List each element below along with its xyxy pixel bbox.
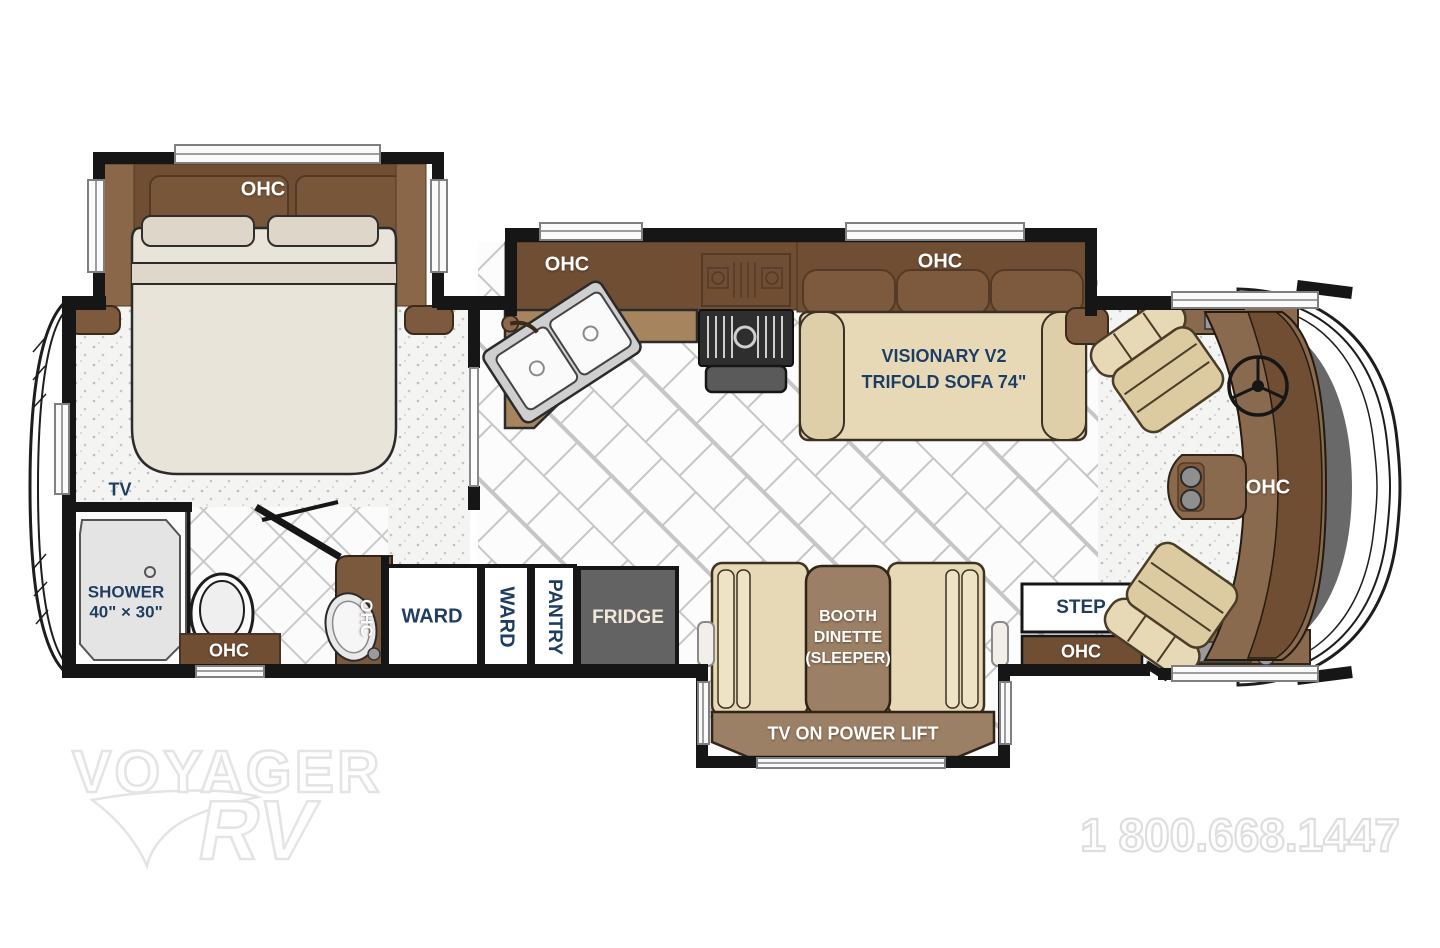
wardrobe-small-label: WARD: [495, 586, 518, 647]
sofa-label-line2: TRIFOLD SOFA 74": [862, 369, 1027, 395]
sofa-label-line1: VISIONARY V2: [862, 343, 1027, 369]
phone-watermark: 1 800.668.1447: [1010, 808, 1400, 862]
bedroom-ohc-label: OHC: [241, 179, 285, 202]
dinette-label: BOOTH DINETTE (SLEEPER): [805, 607, 890, 669]
rv-watermark: RV: [191, 782, 323, 879]
dinette-label-line3: (SLEEPER): [805, 648, 890, 669]
rv-floorplan-page: OHC TV SHOWER 40" × 30" OHC OHC WARD WAR…: [0, 0, 1440, 948]
sofa-ohc-label: OHC: [918, 251, 962, 274]
sofa-label: VISIONARY V2 TRIFOLD SOFA 74": [862, 343, 1027, 395]
wardrobe-large-label: WARD: [401, 606, 462, 629]
labels-layer: OHC TV SHOWER 40" × 30" OHC OHC WARD WAR…: [0, 0, 1440, 948]
dinette-label-line2: DINETTE: [805, 628, 890, 649]
tv-lift-label: TV ON POWER LIFT: [768, 724, 939, 745]
shower-label-line2: 40" × 30": [88, 602, 165, 622]
step-label: STEP: [1056, 597, 1106, 619]
fridge-label: FRIDGE: [592, 607, 664, 629]
entry-ohc-label: OHC: [1061, 642, 1101, 663]
vanity-ohc-label: OHC: [356, 599, 376, 637]
bedroom-tv-label: TV: [108, 480, 131, 501]
shower-label: SHOWER 40" × 30": [88, 582, 165, 621]
bathroom-ohc-label: OHC: [209, 641, 249, 662]
kitchen-ohc-label: OHC: [545, 254, 589, 277]
cockpit-ohc-label: OHC: [1246, 477, 1290, 500]
dinette-label-line1: BOOTH: [805, 607, 890, 628]
shower-label-line1: SHOWER: [88, 582, 165, 602]
pantry-label: PANTRY: [543, 579, 565, 655]
